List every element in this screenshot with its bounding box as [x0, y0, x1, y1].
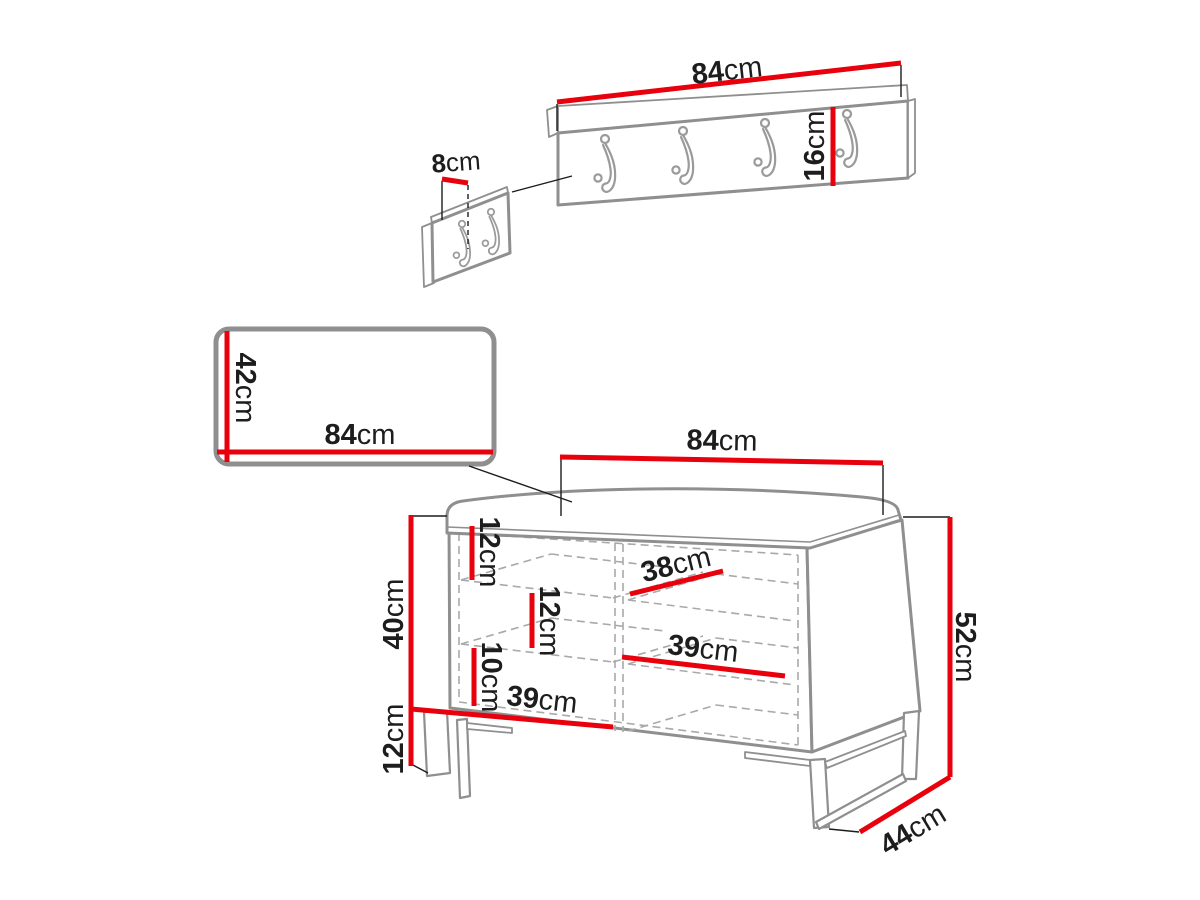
dim-label-inner-mid-gap: 12cm [533, 586, 565, 657]
dim-label-inner-bottom-gap: 10cm [475, 642, 507, 713]
hook-spacing-detail-panel [422, 187, 510, 287]
dim-line-hook-spacing [442, 179, 468, 183]
furniture-dimension-diagram: 84cm 16cm 8cm 42cm 84cm 84cm 40cm 12cm 5… [0, 0, 1200, 900]
dim-label-hook-spacing: 8cm [430, 145, 481, 178]
dim-line-bench-width [560, 457, 883, 463]
dim-label-bench-total-height: 52cm [949, 612, 981, 683]
bench-leg-floor-runner-right [816, 774, 906, 829]
dim-label-mirror-width: 84cm [325, 419, 396, 451]
dim-label-hanger-width: 84cm [690, 51, 764, 91]
dim-label-bench-depth: 44cm [874, 798, 951, 862]
bench-front-rail-right [745, 752, 810, 766]
bench-leg-front-left [424, 711, 450, 776]
wall-hanger-panel [547, 85, 915, 205]
bench-front-rail-left [467, 723, 512, 733]
dim-label-bench-width: 84cm [686, 424, 757, 457]
dim-label-bench-body-height: 40cm [378, 579, 410, 650]
diagram-canvas: 84cm 16cm 8cm 42cm 84cm 84cm 40cm 12cm 5… [0, 0, 1200, 900]
dim-label-inner-top-gap: 12cm [473, 517, 505, 588]
dim-label-bench-leg-height: 12cm [378, 704, 410, 775]
bench-leg-front-left-side [457, 719, 470, 798]
dim-label-mirror-height: 42cm [229, 353, 261, 424]
dim-label-hanger-height: 16cm [799, 111, 831, 182]
bench-leg-back-right [902, 711, 919, 779]
hanger-panel-right-edge [908, 99, 915, 178]
